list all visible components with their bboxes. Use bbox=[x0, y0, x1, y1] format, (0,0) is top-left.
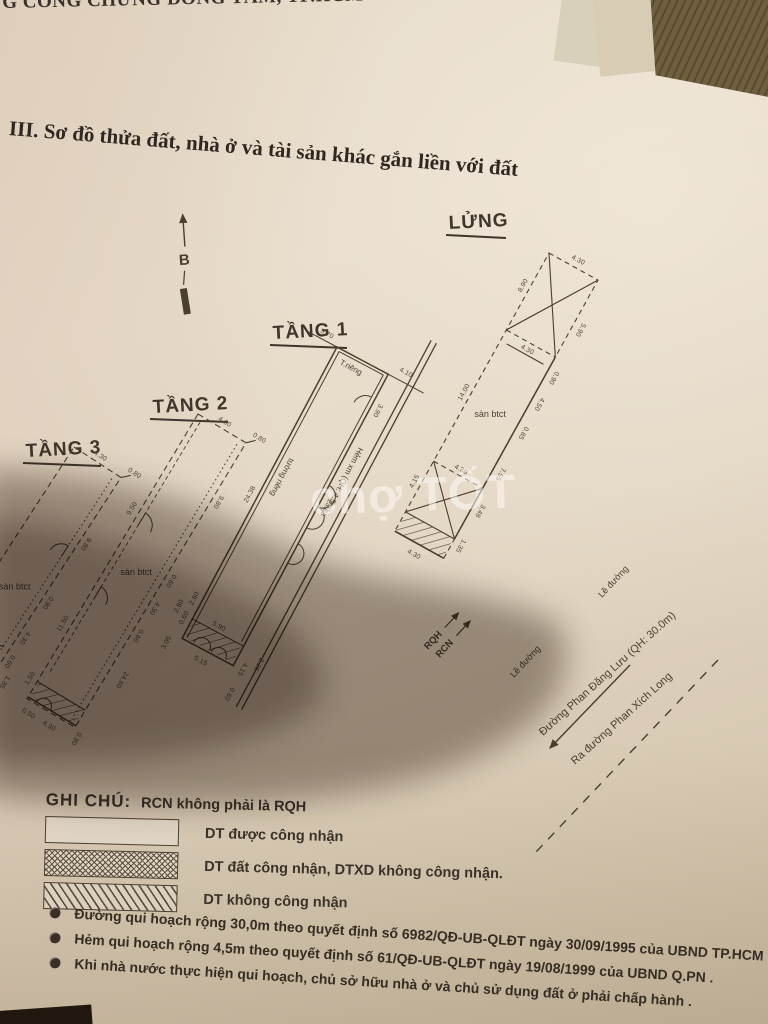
dim-label: 3.05 bbox=[160, 635, 173, 651]
floor-area-label: sàn btct bbox=[474, 409, 506, 419]
dim-label: 14.00 bbox=[457, 383, 472, 402]
street-main-label: Đường Phan Đăng Lưu (QH: 30.0m) bbox=[537, 609, 678, 738]
curb-label-tang1: Lề đường bbox=[508, 644, 542, 680]
plan-lung: sàn btct 4.30 5.90 8.90 4.30 0.90 4.50 1… bbox=[379, 239, 614, 578]
dim-label: 4.30 bbox=[41, 720, 57, 733]
legend-swatch-land-only bbox=[44, 849, 179, 879]
dim-label: 9.80 bbox=[211, 494, 224, 510]
road-dashed-line bbox=[536, 660, 718, 852]
legend-note: RCN không phải là RQH bbox=[141, 795, 306, 815]
note-bullet-icon bbox=[49, 932, 61, 944]
legend-swatch-recognized bbox=[45, 816, 180, 846]
photo-canvas: G CÔNG CHỨNG ĐỒNG TÂM, TP.HCM III. Sơ đồ… bbox=[0, 0, 768, 1024]
curb-label-lung: Lề đường bbox=[596, 564, 630, 600]
dim-label: 4.30 bbox=[570, 254, 586, 267]
dim-label: 0.90 bbox=[41, 595, 55, 611]
legend-title: GHI CHÚ: bbox=[46, 790, 132, 812]
dim-label: 0.90 bbox=[547, 370, 560, 386]
dim-label: 1.35 bbox=[454, 538, 467, 554]
plan-labels: LỬNG TẦNG 1 TẦNG 2 TẦNG 3 bbox=[23, 209, 509, 466]
dim-label: 4.10 bbox=[398, 367, 414, 380]
legend-item: DT được công nhận bbox=[45, 816, 504, 854]
dim-label: 4.15 bbox=[236, 661, 249, 677]
plan-tang3: sàn btct sân thượng 4.30 0.80 9.80 17.40… bbox=[0, 429, 143, 783]
dim-label: 0.85 bbox=[517, 425, 530, 441]
north-arrow: B bbox=[175, 214, 194, 314]
dim-label: 2.60 bbox=[188, 591, 201, 607]
dim-label: 1.85 bbox=[0, 674, 11, 690]
compass-label: B bbox=[178, 251, 190, 269]
dim-label: 3.90 bbox=[371, 403, 384, 419]
floor-area-label: sàn btct bbox=[120, 567, 152, 577]
dim-label: 0.80 bbox=[126, 467, 142, 481]
dim-label: 1.50 bbox=[24, 671, 37, 687]
plan-label-lung: LỬNG bbox=[448, 209, 509, 234]
legend: GHI CHÚ: RCN không phải là RQH DT được c… bbox=[43, 790, 505, 920]
dim-label: 0.80 bbox=[251, 432, 267, 445]
legend-item-label: DT đất công nhận, DTXD không công nhận. bbox=[204, 858, 503, 881]
watermark: chợ TỐT bbox=[309, 464, 517, 526]
rqh-rcn-markers: RQH RCN bbox=[422, 608, 474, 662]
dim-label: 0.50 bbox=[20, 707, 36, 720]
floor-area-label: sàn btct bbox=[0, 582, 31, 592]
tang3-dims: 4.30 0.80 9.80 17.40 0.90 4.30 0.60 1.85… bbox=[0, 429, 143, 783]
dim-label: 9.50 bbox=[126, 501, 139, 517]
note-bullet-icon bbox=[49, 907, 61, 919]
plan-label-tang3: TẦNG 3 bbox=[25, 436, 102, 462]
dim-label: 0.80 bbox=[69, 731, 82, 747]
dim-label: 4.50 bbox=[533, 396, 546, 412]
dim-label: 24.60 bbox=[114, 670, 129, 689]
legend-item-label: DT được công nhận bbox=[205, 825, 344, 844]
dim-label: 9.80 bbox=[79, 536, 93, 552]
plan-label-tang1: TẦNG 1 bbox=[272, 318, 349, 344]
legend-item: DT đất công nhận, DTXD không công nhận. bbox=[44, 849, 503, 887]
dim-label: 0.60 bbox=[3, 654, 17, 670]
note-bullet-icon bbox=[49, 957, 61, 969]
planning-notes: Đường qui hoạch rộng 30,0m theo quyết đị… bbox=[50, 904, 768, 979]
dim-label: 4.30 bbox=[406, 548, 422, 561]
wall-top-label: T.riêng bbox=[338, 358, 363, 377]
plan-label-tang2: TẦNG 2 bbox=[152, 392, 229, 418]
dim-label: 0.60 bbox=[223, 686, 236, 702]
dim-label: 5.90 bbox=[574, 322, 587, 338]
dim-label: 5.15 bbox=[193, 655, 209, 668]
street-annotations: Đường Phan Đăng Lưu (QH: 30.0m) Ra đường… bbox=[536, 609, 718, 852]
